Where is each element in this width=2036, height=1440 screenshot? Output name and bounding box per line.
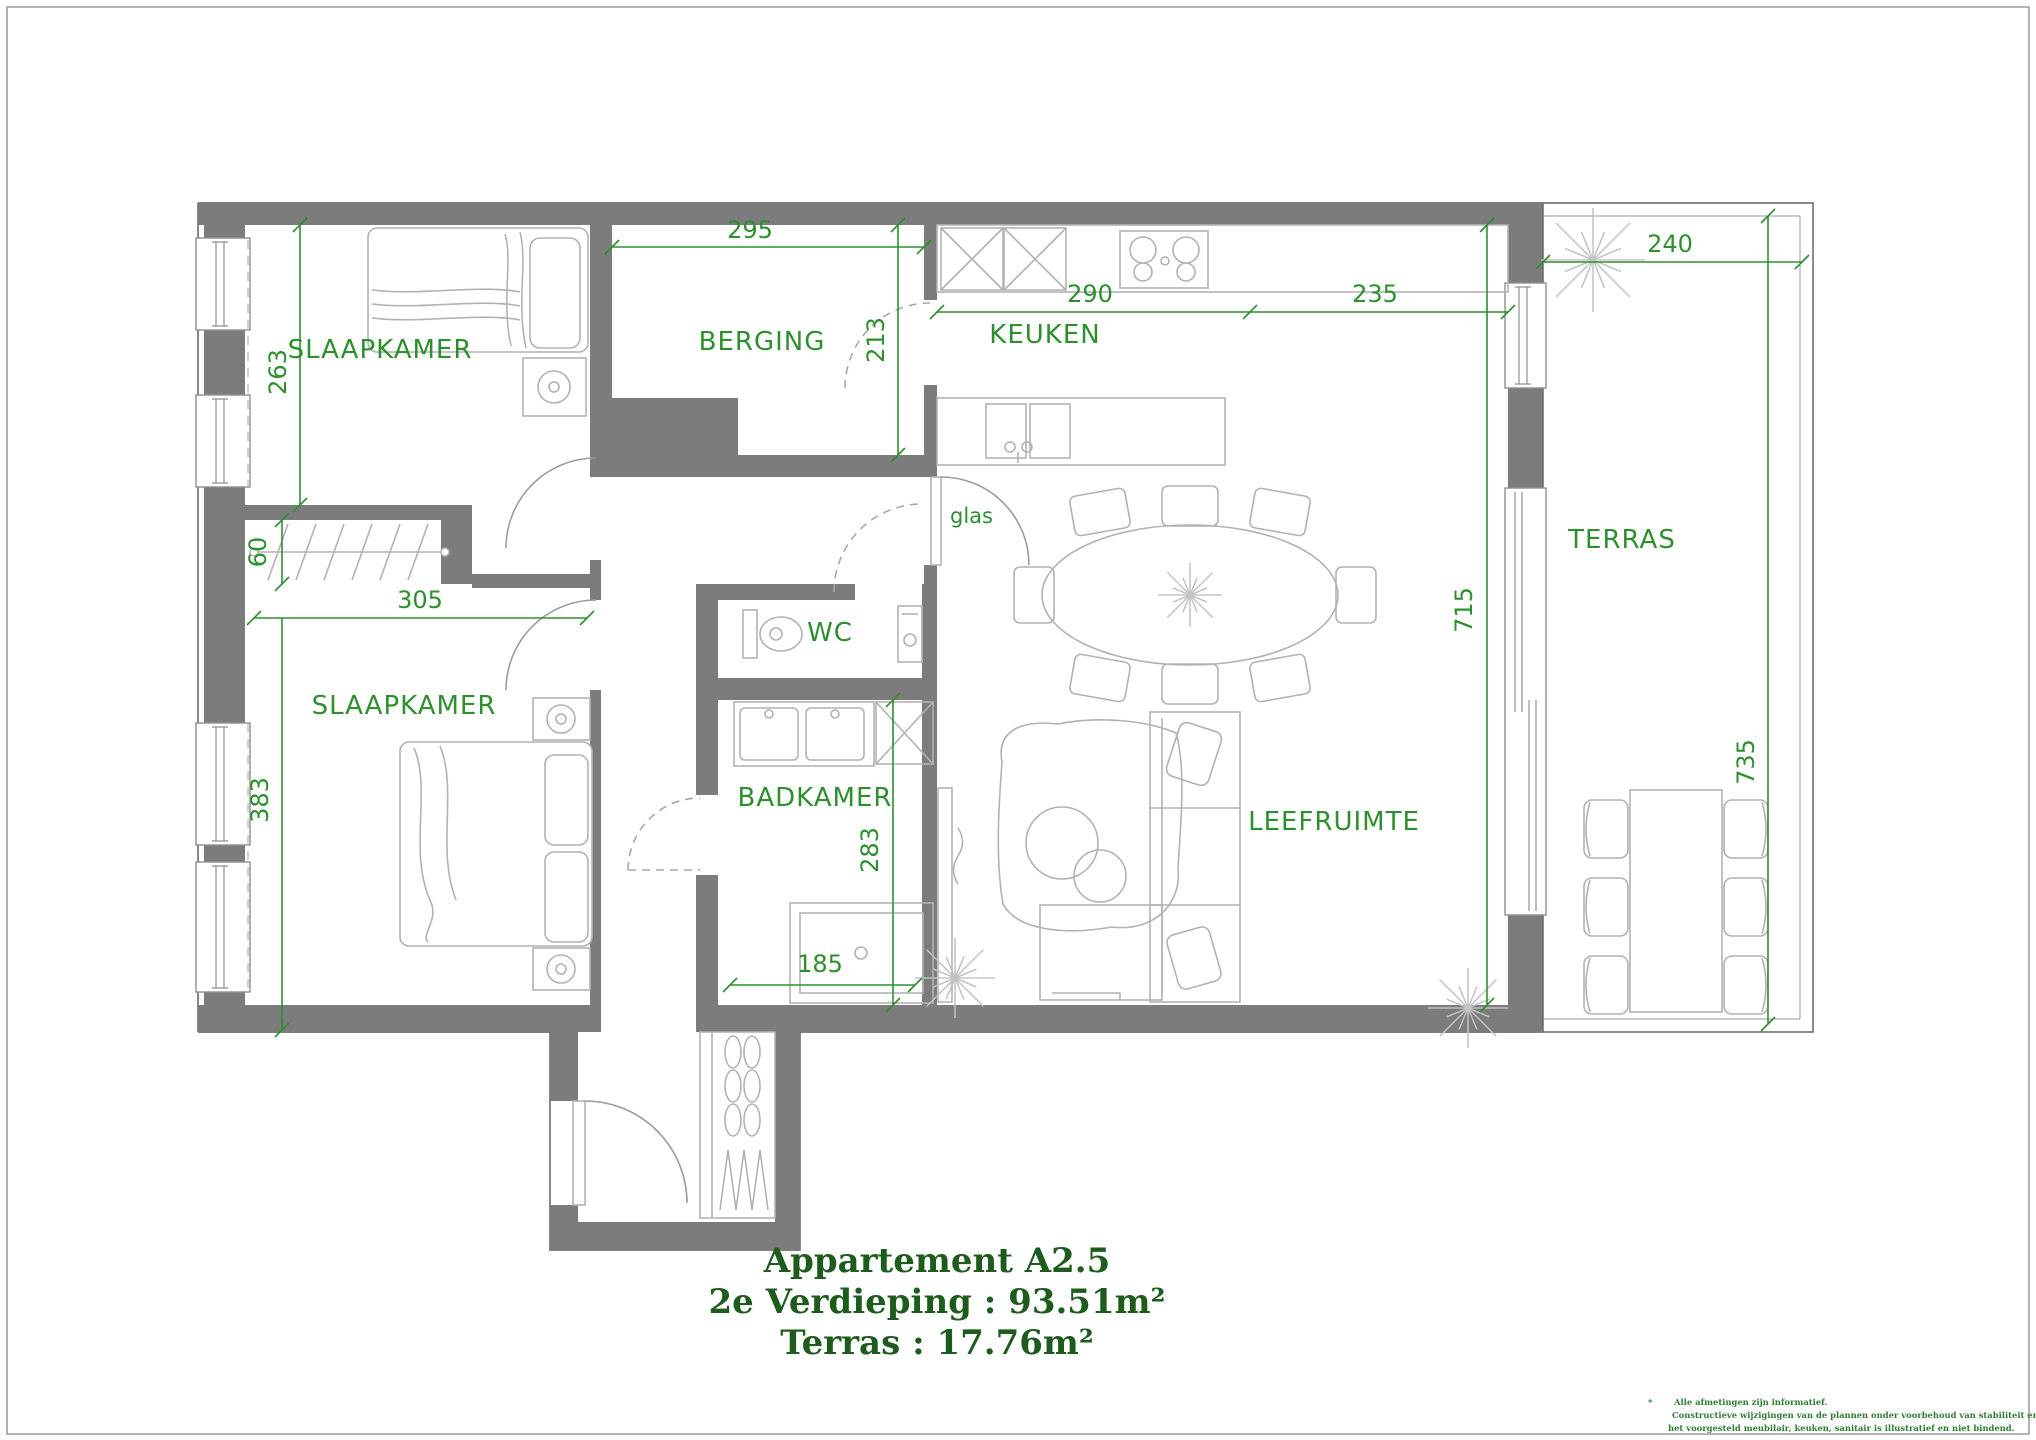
title-line1: Appartement A2.5	[763, 1241, 1111, 1281]
footnote-line3: het voorgesteld meubilair, keuken, sanit…	[1668, 1423, 2015, 1433]
wall-bath-west-a	[696, 584, 718, 795]
chair-icon	[1584, 800, 1628, 858]
floorplan-drawing: 263 295 213 290 235 240 60 305 383 283 1…	[0, 0, 2036, 1440]
wall-corridor-b	[590, 560, 601, 600]
wall-storage-east-a	[924, 225, 937, 300]
wall-south-right	[696, 1005, 1543, 1032]
window-icon	[196, 723, 250, 845]
dim-290: 290	[1067, 280, 1113, 308]
wall-storage-duct	[612, 398, 738, 477]
dim-240: 240	[1647, 230, 1693, 258]
chair-icon	[1162, 486, 1218, 526]
chair-icon	[1584, 956, 1628, 1014]
sofa	[998, 712, 1240, 1002]
wall-hall-pier	[924, 565, 937, 584]
east-windows	[1505, 283, 1546, 915]
chair-icon	[1249, 487, 1311, 536]
wall-bathroom-east	[922, 700, 937, 1005]
sink-icon	[806, 708, 864, 760]
bed-top-bedroom	[368, 228, 588, 352]
window-icon	[196, 238, 250, 330]
door-arc-entrance	[585, 1101, 687, 1203]
sink-icon	[1030, 404, 1070, 458]
shoe-closet	[700, 1032, 775, 1218]
wall-vestibule-east	[775, 1032, 800, 1222]
wall-bath-west-b	[696, 875, 718, 1005]
title-block: Appartement A2.5 2e Verdieping : 93.51m²…	[709, 1241, 1166, 1363]
toilet-icon	[743, 610, 802, 658]
terrace-table	[1584, 790, 1768, 1014]
room-label-living: LEEFRUIMTE	[1248, 807, 1420, 837]
chair-icon	[1336, 567, 1376, 623]
footnote-marker: *	[1648, 1397, 1653, 1407]
room-label-storage: BERGING	[699, 327, 826, 357]
hob-icon	[1120, 231, 1208, 288]
door-arc-bedroom1	[506, 458, 596, 548]
wall-closet-jog	[441, 505, 472, 584]
title-line3: Terras : 17.76m²	[780, 1323, 1094, 1363]
room-label-terrace: TERRAS	[1567, 525, 1676, 555]
kitchen-island	[937, 398, 1225, 465]
bathroom-vanity	[734, 702, 874, 766]
wall-wc-north	[696, 584, 855, 600]
dim-305: 305	[397, 586, 443, 614]
dim-295: 295	[727, 216, 773, 244]
room-label-wc: WC	[807, 618, 853, 648]
dim-60: 60	[244, 537, 272, 568]
dim-715: 715	[1450, 587, 1478, 633]
wall-vestibule-south	[550, 1222, 800, 1250]
wall-vestibule-west-a	[550, 1032, 578, 1101]
bed-bottom-bedroom	[400, 742, 592, 946]
entrance-door-leaf	[573, 1101, 585, 1205]
coffee-table-icon	[1074, 850, 1126, 902]
wall-bedroom1-storage	[590, 225, 612, 455]
dim-235: 235	[1352, 280, 1398, 308]
dim-283: 283	[856, 827, 884, 873]
dim-735: 735	[1732, 739, 1760, 785]
dim-185: 185	[797, 950, 843, 978]
ottoman	[1040, 905, 1162, 1000]
chair-icon	[1162, 664, 1218, 704]
chair-icon	[1069, 653, 1131, 702]
rug	[998, 720, 1182, 931]
chair-icon	[1724, 800, 1768, 858]
footnote-line1: Alle afmetingen zijn informatief.	[1673, 1397, 1827, 1407]
chair-icon	[1724, 956, 1768, 1014]
door-arc-wc	[834, 504, 922, 592]
wall-south-left	[198, 1005, 601, 1032]
wall-bedroom1-south	[209, 505, 460, 520]
door-arc-bathroom	[628, 798, 700, 870]
sink-icon	[740, 708, 798, 760]
room-label-bedroom-bottom: SLAAPKAMER	[312, 691, 497, 721]
wall-wc-bathroom	[696, 678, 937, 700]
nightstand-icon	[533, 698, 590, 740]
room-label-kitchen: KEUKEN	[989, 320, 1100, 350]
chair-icon	[1584, 878, 1628, 936]
wall-closet-bottom	[472, 574, 601, 588]
cushion	[1164, 721, 1223, 788]
coffee-table-icon	[1026, 807, 1098, 879]
chair-icon	[1724, 878, 1768, 936]
coat-hooks-icon	[720, 1150, 768, 1210]
chair-icon	[1069, 487, 1131, 536]
floorplan-page: 263 295 213 290 235 240 60 305 383 283 1…	[0, 0, 2036, 1440]
wc-sink-icon	[898, 606, 922, 662]
room-label-bedroom-top: SLAAPKAMER	[288, 335, 473, 365]
glass-annotation: glas	[950, 504, 993, 528]
nightstand-icon	[523, 358, 586, 416]
room-label-bathroom: BADKAMER	[738, 783, 893, 813]
shoes-icon	[725, 1036, 760, 1136]
footnote-line2: Constructieve wijzigingen van de plannen…	[1672, 1410, 2036, 1420]
glass-door-leaf	[931, 477, 941, 565]
wall-storage-east-b	[924, 385, 937, 455]
wall-north	[198, 203, 1543, 225]
kitchen-counter	[937, 225, 1508, 292]
window-icon	[196, 862, 250, 992]
window-icon	[196, 395, 250, 487]
wardrobe-rail	[250, 524, 449, 580]
cushion	[1165, 925, 1223, 991]
dim-383: 383	[246, 777, 274, 823]
footnote: * Alle afmetingen zijn informatief. Cons…	[1648, 1397, 2036, 1433]
sliding-door-icon	[1505, 488, 1546, 915]
window-icon	[1505, 283, 1546, 388]
dim-213: 213	[862, 317, 890, 363]
nightstand-icon	[533, 948, 590, 990]
door-arc-bedroom2	[506, 600, 596, 690]
chair-icon	[1249, 653, 1311, 702]
title-line2: 2e Verdieping : 93.51m²	[709, 1282, 1166, 1322]
